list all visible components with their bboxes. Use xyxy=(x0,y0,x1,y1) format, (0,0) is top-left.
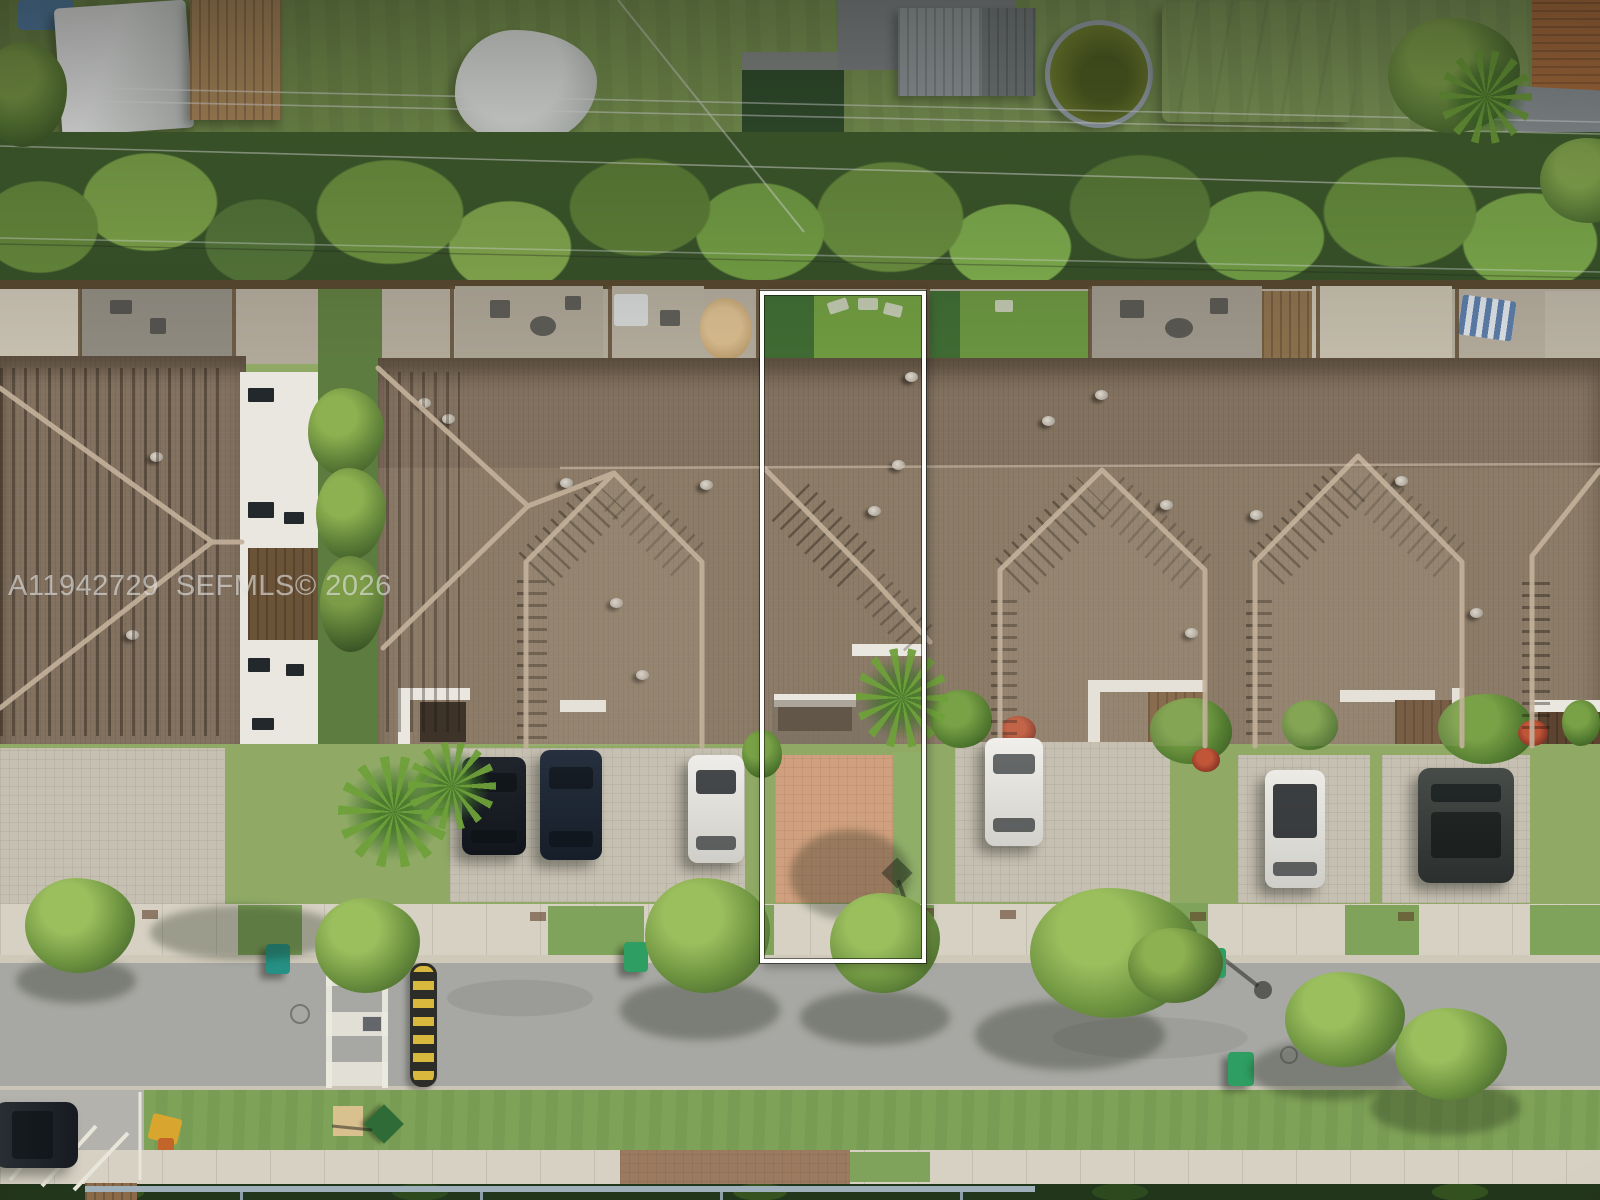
parked-car-navy xyxy=(540,750,602,860)
trash-bin-green xyxy=(624,942,648,972)
parked-suv-gray xyxy=(1418,768,1514,883)
parked-car-white-right xyxy=(985,738,1043,846)
parked-car-white-left xyxy=(688,755,744,863)
aerial-photo: A11942729 SEFMLS© 2026 xyxy=(0,0,1600,1200)
banana-plant xyxy=(1440,50,1532,144)
subject-property-outline xyxy=(760,291,926,963)
palm-tree xyxy=(408,742,496,830)
street-parked-car xyxy=(0,1102,78,1168)
parked-car-white-panoroof xyxy=(1265,770,1325,888)
mls-watermark: A11942729 SEFMLS© 2026 xyxy=(8,570,392,603)
